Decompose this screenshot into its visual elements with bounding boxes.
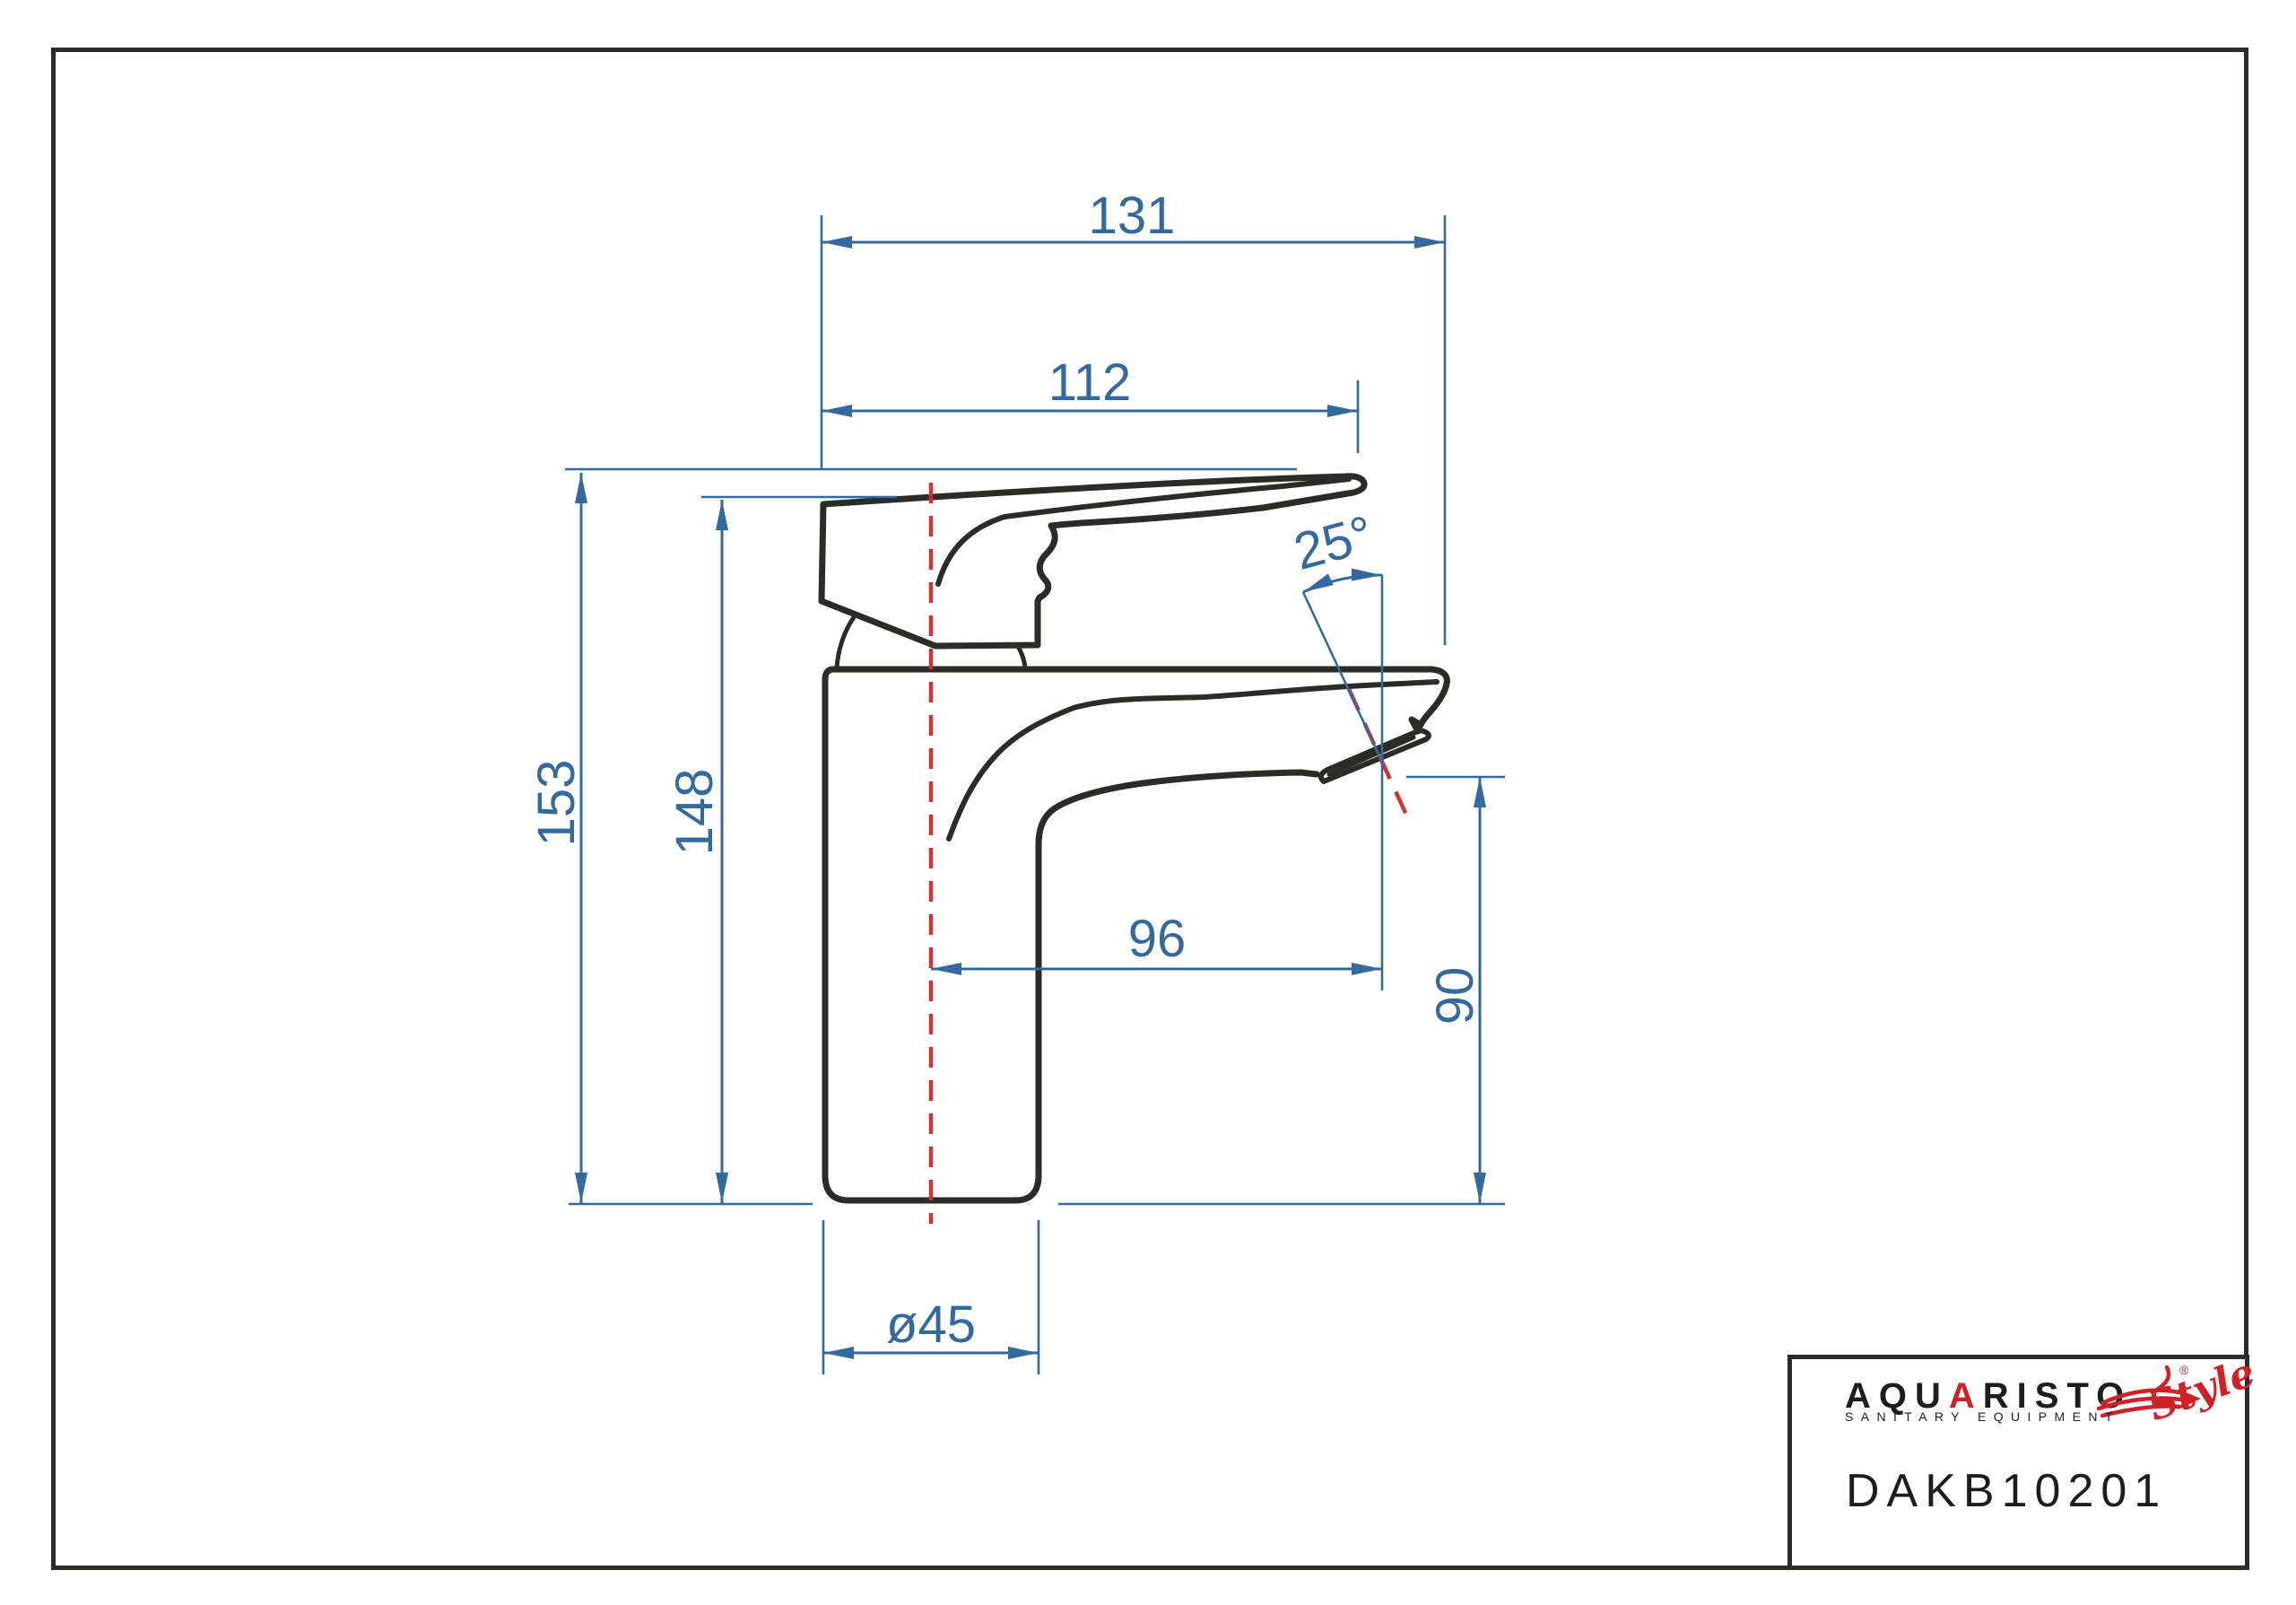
cartridge-dome-right bbox=[1019, 648, 1025, 669]
dim-label-body-height: 148 bbox=[665, 769, 724, 856]
handle-outline bbox=[822, 476, 1364, 646]
spout-tip-face bbox=[1412, 669, 1447, 731]
dim-label-total-height: 153 bbox=[527, 760, 586, 847]
dim-label-overall-width: 131 bbox=[1089, 187, 1176, 245]
brand-tagline: SANITARY EQUIPMENT bbox=[1845, 1410, 2120, 1423]
ext-angle-slant bbox=[1303, 592, 1380, 758]
dim-label-handle-width: 112 bbox=[1048, 353, 1131, 412]
faucet-outline bbox=[822, 476, 1447, 1200]
dim-label-outlet-angle: 25° bbox=[1288, 504, 1379, 580]
model-code: DAKB10201 bbox=[1846, 1468, 2167, 1514]
dim-label-spout-reach: 96 bbox=[1128, 910, 1187, 968]
dim-label-base-diameter: ø45 bbox=[886, 1295, 976, 1354]
dim-label-outlet-height: 90 bbox=[1426, 967, 1484, 1025]
cartridge-dome-left bbox=[837, 617, 854, 668]
drawing-sheet: 131 112 153 148 96 90 ø45 25° AQUARISTO … bbox=[0, 0, 2296, 1605]
aerator-inner-line bbox=[1329, 737, 1413, 774]
